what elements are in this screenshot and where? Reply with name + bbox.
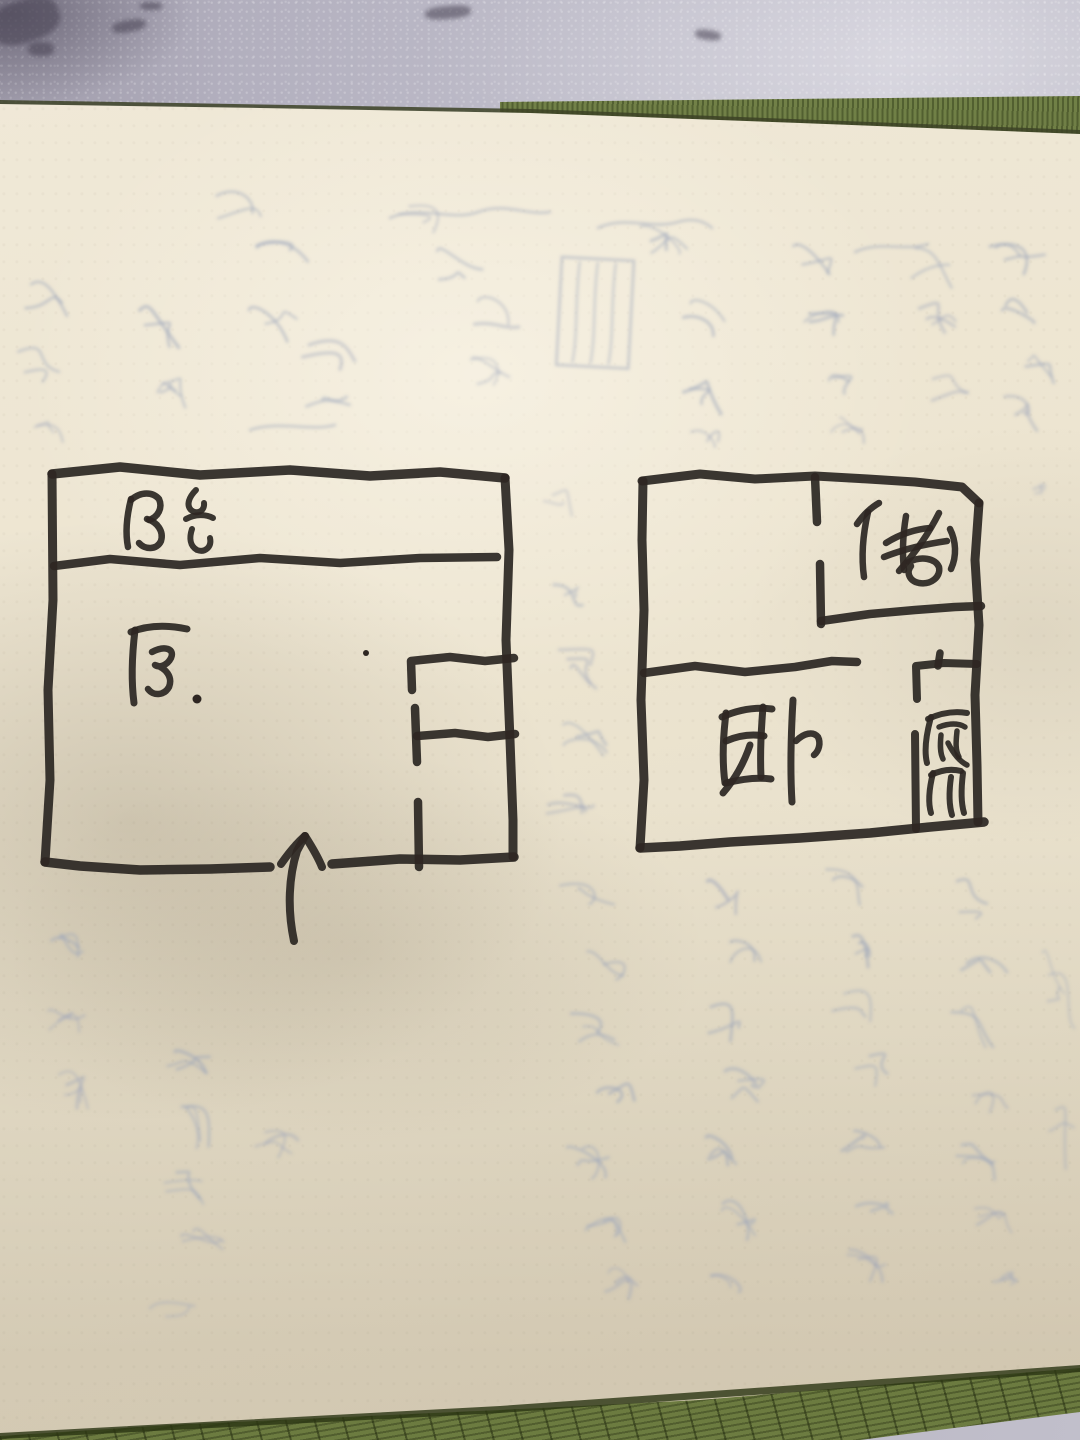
left-wall [640, 481, 644, 848]
storage-left-wall [820, 564, 821, 624]
closet-mid-wall [417, 733, 515, 737]
bedroom-divider [644, 661, 857, 673]
storage-bottom-wall [821, 606, 981, 621]
room-label-bedroom [722, 700, 819, 802]
left-floor-plan [45, 467, 515, 941]
toilet-top-wall [916, 663, 977, 699]
right-floor-plan [640, 474, 984, 848]
right-wall [505, 478, 513, 857]
lower-divider [418, 802, 419, 867]
top-wall [52, 467, 505, 478]
ink-dot [363, 650, 369, 656]
bottom-wall [640, 822, 984, 848]
room-label-storage [857, 503, 955, 583]
bleed-wave [598, 220, 712, 228]
entrance-arrow [281, 836, 322, 941]
bleed-wave [250, 425, 335, 430]
room-label-hall [131, 626, 187, 703]
top-wall [642, 474, 979, 503]
room-label-toilet [926, 712, 967, 815]
floor-plan-sketch [0, 0, 1080, 1440]
toilet-left-wall [915, 734, 916, 829]
left-wall [45, 474, 53, 862]
bleed-wave [390, 208, 550, 218]
ink-dot [193, 695, 202, 704]
notebook-photo: 阳台 厅. 储 卧 厕所 ↑ [0, 0, 1080, 1440]
room-label-balcony [127, 490, 213, 551]
balcony-divider [54, 557, 497, 566]
top-door-tick [815, 477, 817, 522]
bottom-wall-left [45, 862, 270, 870]
toilet-door-tick [938, 653, 940, 666]
closet-top-wall [411, 657, 514, 690]
